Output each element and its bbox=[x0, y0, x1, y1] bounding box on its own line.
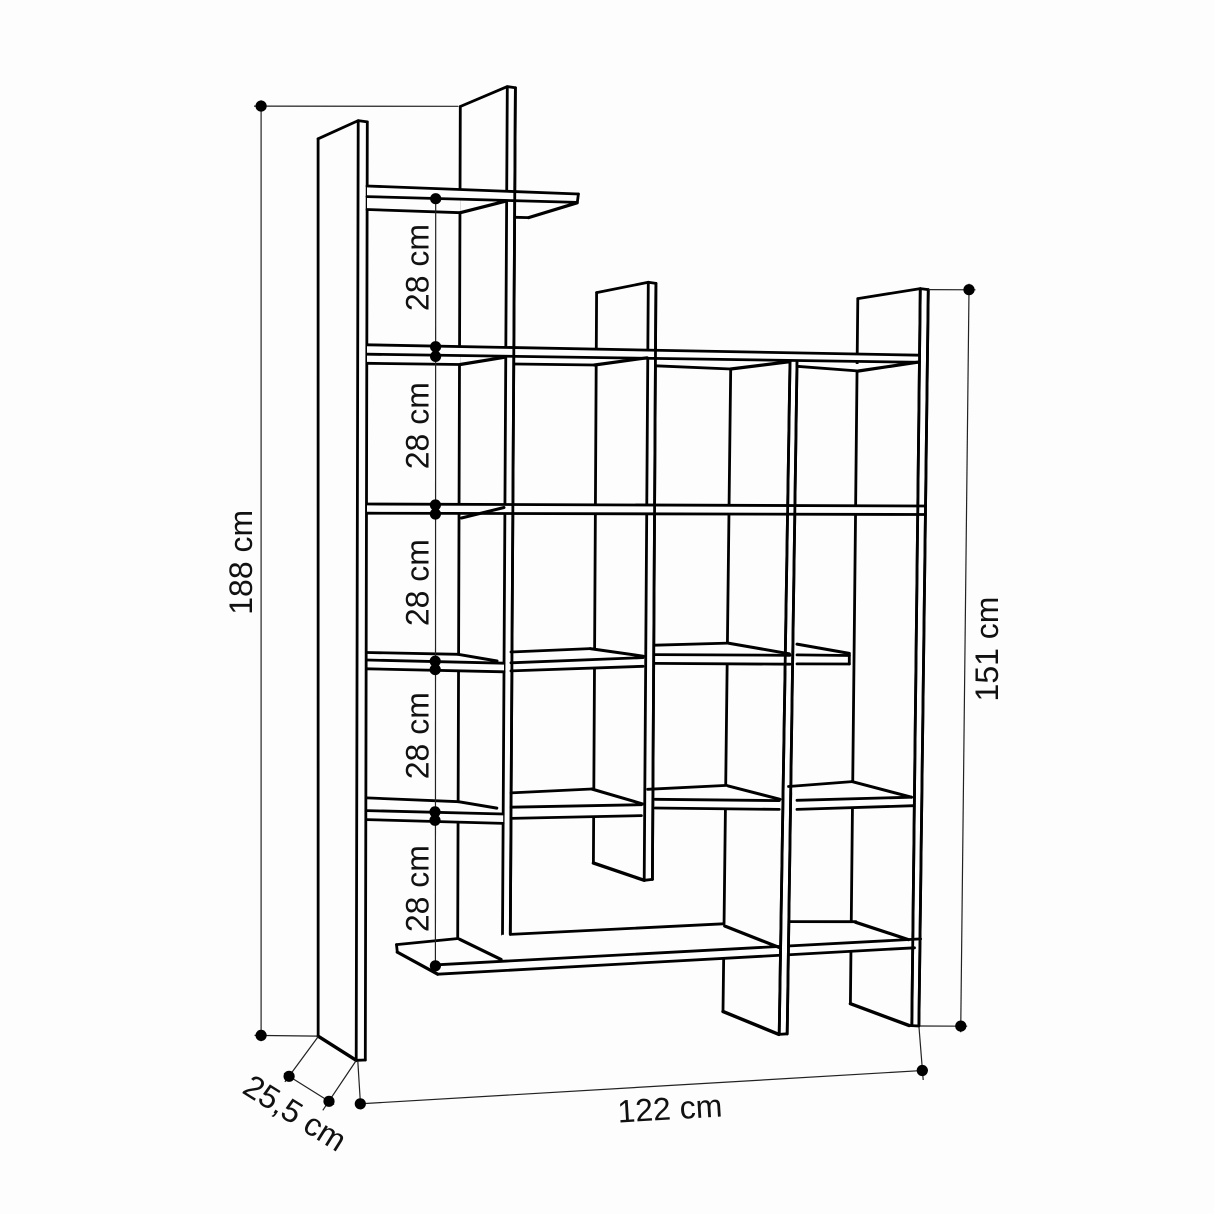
svg-text:28 cm: 28 cm bbox=[399, 845, 435, 932]
svg-text:28 cm: 28 cm bbox=[399, 692, 435, 779]
svg-text:188 cm: 188 cm bbox=[223, 510, 259, 615]
svg-text:28 cm: 28 cm bbox=[399, 539, 435, 626]
svg-text:28 cm: 28 cm bbox=[399, 382, 435, 469]
svg-text:122 cm: 122 cm bbox=[616, 1087, 723, 1129]
svg-text:28 cm: 28 cm bbox=[399, 224, 435, 311]
svg-text:151 cm: 151 cm bbox=[969, 597, 1005, 702]
